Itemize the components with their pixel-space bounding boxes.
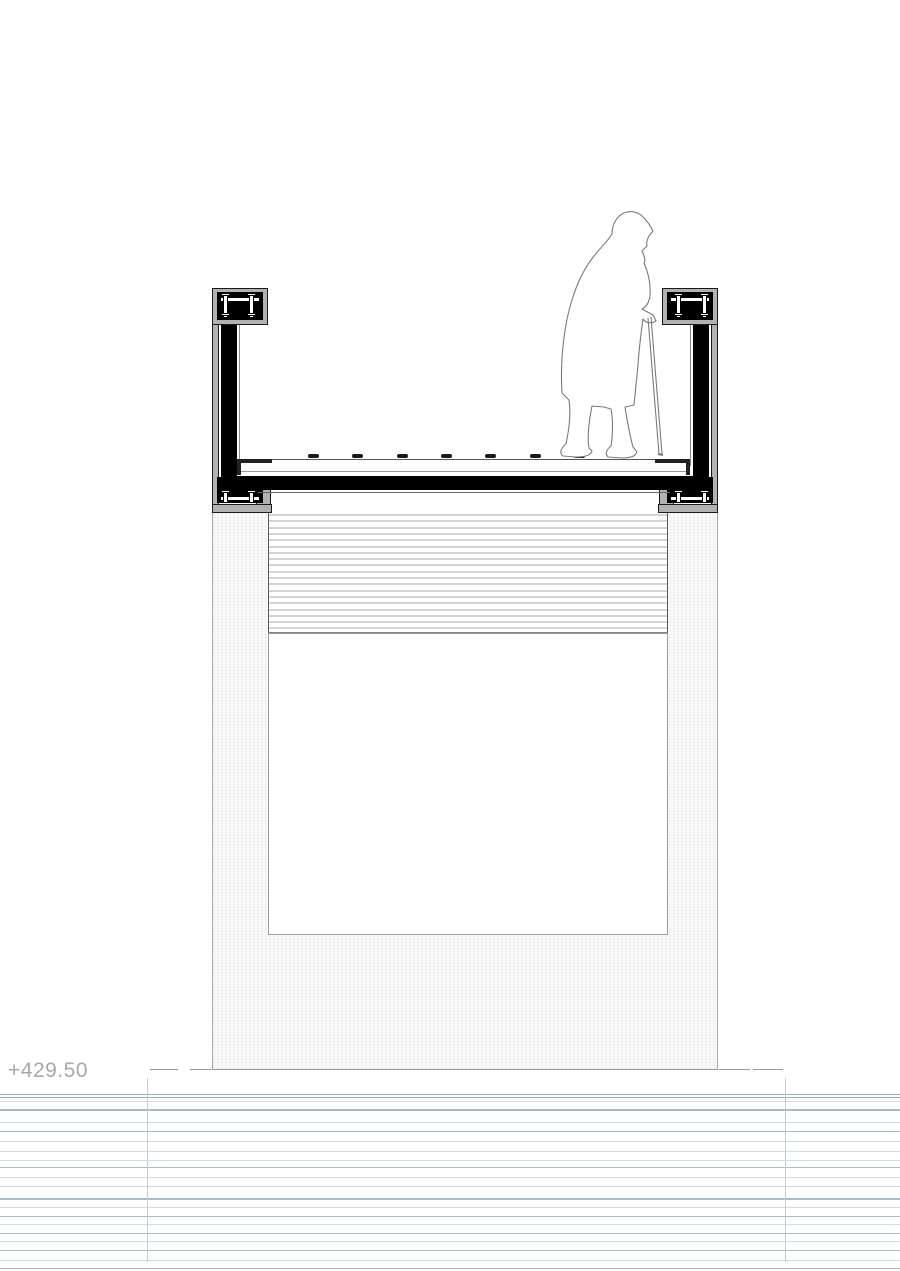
deck-clip bbox=[308, 454, 319, 458]
deck-clip bbox=[441, 454, 452, 458]
deck-clip bbox=[352, 454, 363, 458]
edge-angle-right bbox=[686, 459, 690, 475]
deck-clip bbox=[397, 454, 408, 458]
section-drawing-canvas: +429.50 bbox=[0, 0, 900, 1271]
deck-clip bbox=[530, 454, 541, 458]
deck-assembly bbox=[0, 0, 900, 1271]
edge-angle-left bbox=[237, 459, 241, 475]
under-slab-line bbox=[258, 492, 670, 493]
elevation-label: +429.50 bbox=[8, 1059, 88, 1083]
deck-clip bbox=[485, 454, 496, 458]
deck-slab bbox=[221, 476, 699, 490]
edge-angle-left bbox=[237, 459, 272, 463]
elderly-person-figure bbox=[550, 205, 675, 465]
